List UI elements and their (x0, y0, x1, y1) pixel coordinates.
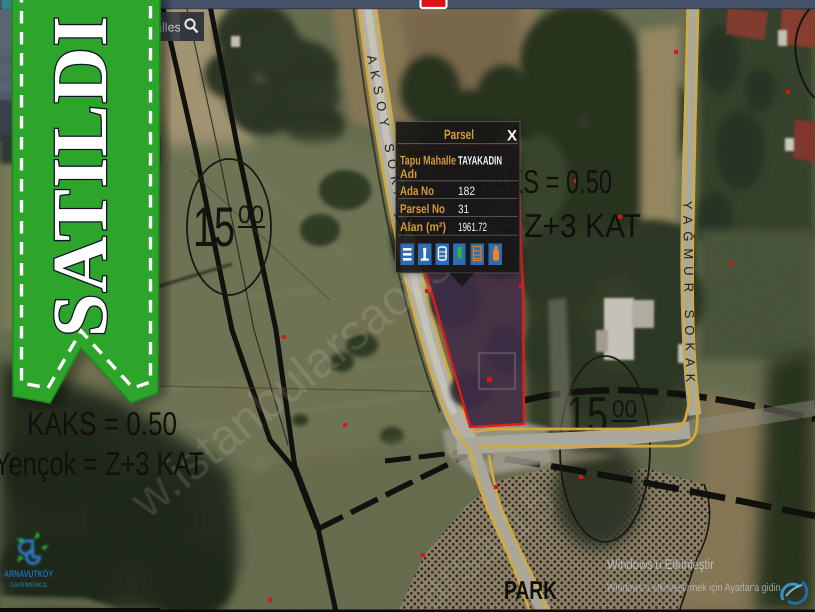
svg-text:Alan (m²): Alan (m²) (400, 220, 446, 234)
svg-text:TAYAKADIN: TAYAKADIN (458, 154, 502, 168)
svg-text:Ada No: Ada No (400, 184, 434, 198)
svg-text:Parsel: Parsel (444, 127, 474, 142)
svg-text:182: 182 (458, 184, 475, 198)
svg-text:1961.72: 1961.72 (458, 220, 487, 234)
svg-text:ARNAVUTKÖY: ARNAVUTKÖY (4, 568, 53, 580)
svg-text:Parsel No: Parsel No (400, 202, 445, 216)
svg-text:GAYRİMENKUL: GAYRİMENKUL (10, 581, 48, 589)
svg-text:Tapu Mahalle: Tapu Mahalle (400, 154, 456, 168)
svg-text:31: 31 (458, 202, 469, 216)
svg-text:Windows'u Etkinleştir: Windows'u Etkinleştir (607, 556, 714, 572)
svg-text:X: X (507, 128, 517, 145)
svg-text:Windows'u etkinleştirmek için: Windows'u etkinleştirmek için Ayarlar'a … (607, 582, 783, 594)
svg-text:Adı: Adı (400, 167, 417, 181)
svg-text:SATILDI: SATILDI (36, 15, 123, 337)
